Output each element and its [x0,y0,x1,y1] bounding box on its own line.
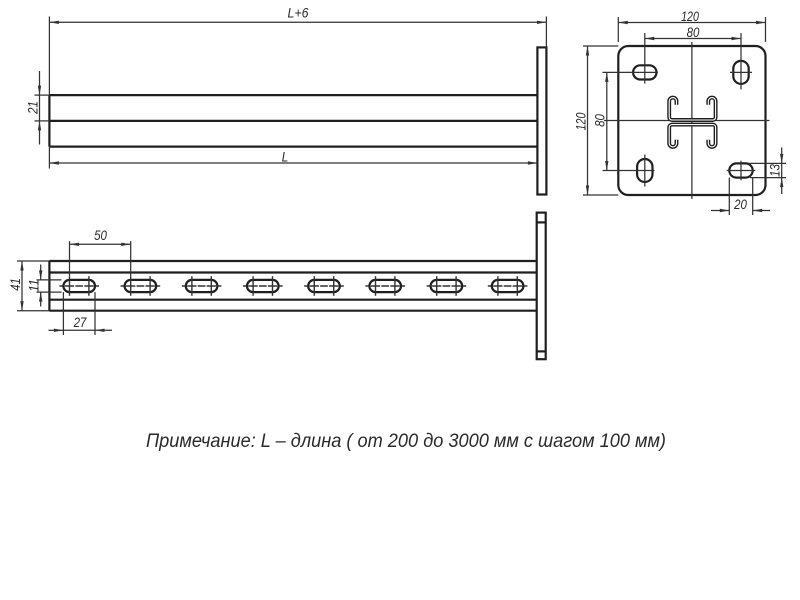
svg-text:50: 50 [94,227,107,243]
svg-text:27: 27 [73,314,88,330]
svg-text:L: L [282,149,289,165]
svg-text:21: 21 [24,101,40,115]
svg-text:80: 80 [687,24,700,40]
svg-text:13: 13 [767,164,783,177]
svg-text:120: 120 [681,8,699,24]
svg-text:120: 120 [572,112,588,130]
svg-text:11: 11 [26,279,42,292]
svg-text:L+6: L+6 [288,5,309,21]
svg-text:80: 80 [592,114,608,127]
svg-text:41: 41 [7,278,23,291]
svg-text:Примечание: L – длина ( от 200: Примечание: L – длина ( от 200 до 3000 м… [146,430,666,452]
svg-text:20: 20 [733,196,747,212]
